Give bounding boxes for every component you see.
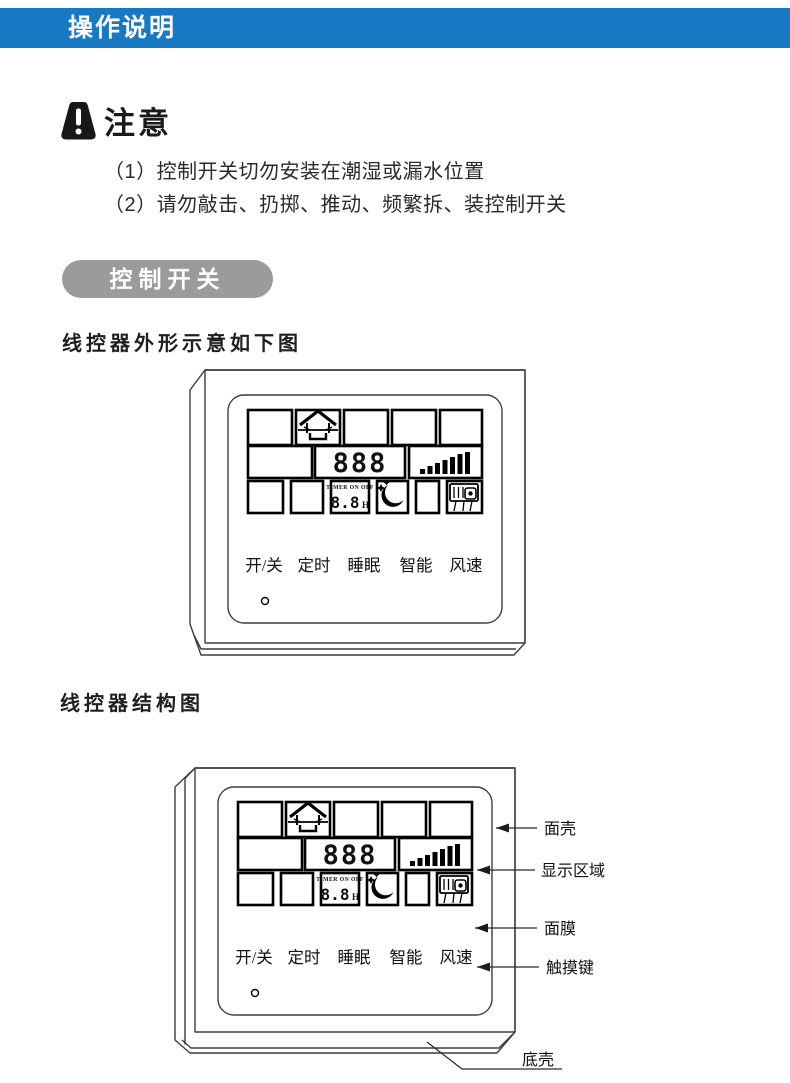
page: 操作说明 注意 （1）控制开关切勿安装在潮湿或漏水位置 （2）请勿敲击、扔掷、推…	[0, 0, 790, 1083]
notice-item: （1）控制开关切勿安装在潮湿或漏水位置	[104, 156, 567, 189]
notice-title: 注意	[104, 98, 172, 143]
callout-membrane: 面膜	[544, 920, 576, 938]
callout-bottom-shell: 底壳	[522, 1051, 554, 1069]
callout-touch-keys: 触摸键	[546, 959, 594, 977]
controller-appearance-diagram	[180, 358, 540, 658]
warning-icon	[60, 101, 97, 141]
callout-front-shell: 面壳	[544, 820, 576, 838]
callout-labels: 面壳 显示区域 面膜 触摸键 底壳	[522, 820, 605, 1069]
callout-display-area: 显示区域	[541, 862, 605, 880]
page-title: 操作说明	[68, 8, 176, 48]
controller-structure-diagram: 面壳 显示区域 面膜 触摸键 底壳	[160, 752, 650, 1083]
section-banner: 控制开关	[62, 260, 273, 298]
page-header: 操作说明	[0, 8, 790, 48]
figure-caption: 线控器外形示意如下图	[62, 327, 302, 356]
notice-list: （1）控制开关切勿安装在潮湿或漏水位置 （2）请勿敲击、扔掷、推动、频繁拆、装控…	[104, 156, 567, 222]
exclamation-bar	[76, 109, 81, 126]
figure-caption: 线控器结构图	[60, 687, 204, 716]
notice-item: （2）请勿敲击、扔掷、推动、频繁拆、装控制开关	[104, 189, 567, 222]
exclamation-dot	[76, 129, 82, 135]
